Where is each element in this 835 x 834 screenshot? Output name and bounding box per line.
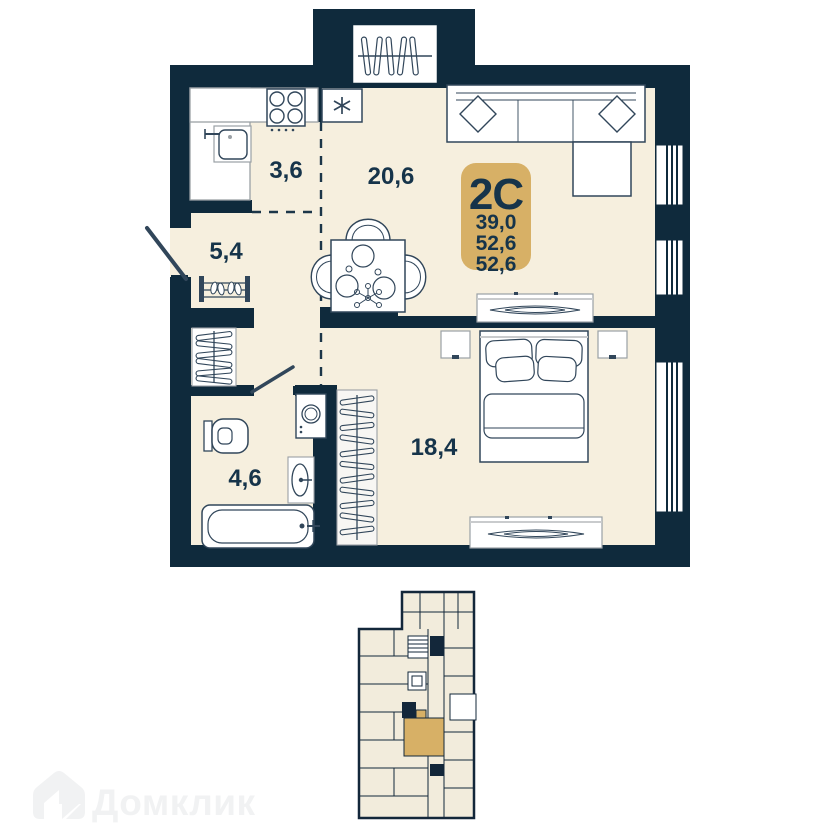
coat-closet [192, 328, 236, 386]
bedroom-wardrobe [337, 390, 377, 545]
fridge [322, 89, 362, 122]
window-living-1 [656, 145, 683, 205]
wardrobe-niche [352, 24, 438, 84]
apartment-badge: 2C 39,0 52,6 52,6 [461, 163, 531, 276]
apartment-area-3: 52,6 [476, 253, 517, 276]
watermark-brand: Домклик [92, 782, 256, 823]
building-plan [359, 592, 476, 818]
toilet-icon [204, 419, 248, 453]
stairwell [408, 636, 428, 658]
floorplan-page: 3,6 20,6 5,4 4,6 18,4 2C 39,0 52,6 52,6 [0, 0, 835, 834]
bathroom-area-label: 4,6 [228, 465, 261, 492]
kitchen-area-label: 3,6 [269, 157, 302, 184]
bedroom-area-label: 18,4 [411, 434, 458, 461]
balcony-outline [450, 694, 476, 720]
window-bedroom [656, 362, 683, 512]
dresser-bottom [470, 516, 602, 548]
bed [480, 331, 588, 462]
hallway-area-label: 5,4 [209, 238, 243, 265]
washing-machine-icon [293, 386, 326, 438]
window-living-2 [656, 240, 683, 295]
bathtub-icon [202, 505, 320, 548]
stove-icon [267, 89, 305, 131]
elevator [408, 672, 426, 690]
apartment-plan: 3,6 20,6 5,4 4,6 18,4 2C 39,0 52,6 52,6 [147, 9, 690, 567]
bathroom-sink-icon [288, 457, 314, 503]
nightstand [598, 331, 627, 359]
dresser-top [477, 292, 593, 322]
apartment-area-1: 39,0 [476, 211, 517, 234]
watermark: Домклик [33, 771, 256, 823]
nightstand [441, 331, 470, 359]
floorplan-image: 3,6 20,6 5,4 4,6 18,4 2C 39,0 52,6 52,6 [0, 0, 835, 834]
apartment-area-2: 52,6 [476, 232, 517, 255]
domclick-house-icon [33, 771, 85, 819]
living-area-label: 20,6 [368, 163, 415, 190]
